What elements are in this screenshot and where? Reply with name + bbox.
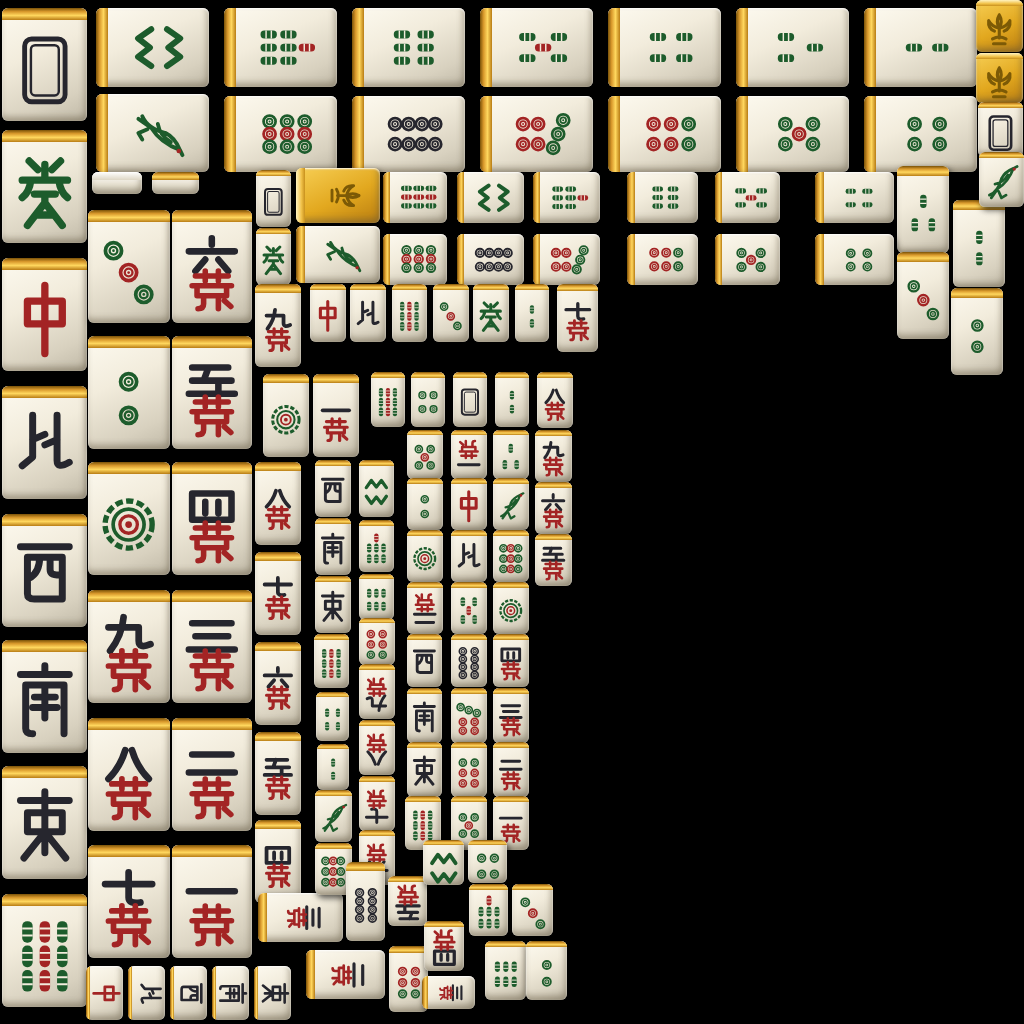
tile-gold-edge [457, 172, 464, 223]
dragon-red-icon [10, 276, 80, 365]
tile-wind-N-r90[interactable] [128, 966, 165, 1020]
circle-6-icon [641, 239, 691, 280]
tile-bamboo-5-r90[interactable] [715, 172, 780, 223]
tile-gold-edge [88, 462, 170, 474]
tile-back[interactable] [256, 170, 291, 227]
tile-face-wind-S [407, 694, 442, 743]
bamboo-1-icon [313, 232, 373, 277]
tile-bamboo-4-r90[interactable] [815, 172, 894, 223]
tile-face-back [453, 378, 487, 427]
tile-gold-edge [736, 8, 748, 87]
tile-face-bamboo-1 [493, 484, 529, 530]
tile-circle-9[interactable] [493, 530, 529, 582]
tile-circle-2[interactable] [407, 478, 443, 530]
tile-gold-edge [263, 374, 309, 383]
tile-back[interactable] [978, 102, 1023, 157]
tile-bamboo-8-r90[interactable] [96, 8, 209, 87]
tile-bamboo-8[interactable] [359, 460, 394, 517]
tile-gold-edge [88, 718, 170, 730]
tile-char-1[interactable] [313, 374, 359, 457]
char-6-icon [259, 654, 297, 721]
circle-2-icon [956, 301, 999, 371]
tile-bamboo-3-r90[interactable] [736, 8, 849, 87]
tile-circle-1[interactable] [493, 582, 529, 634]
tile-face-char-7 [88, 857, 170, 958]
tile-char-7-r180[interactable] [359, 776, 395, 831]
tile-char-1[interactable] [172, 845, 252, 958]
tile-circle-4[interactable] [468, 840, 507, 883]
tile-circle-3[interactable] [433, 284, 469, 342]
tile-gold-edge [864, 8, 876, 87]
tile-face-circle-5 [722, 234, 780, 285]
char-2-icon [322, 956, 378, 994]
tile-dragon-green[interactable] [473, 284, 509, 342]
tile-char-4-r180[interactable] [424, 921, 464, 971]
tile-face-circle-9 [236, 96, 337, 172]
tile-face-char-3 [493, 694, 529, 743]
tile-bamboo-4-r90[interactable] [608, 8, 721, 87]
tile-gold-edge [715, 234, 722, 285]
tile-char-3-r90[interactable] [422, 976, 475, 1009]
tile-atlas-board [0, 0, 1024, 1024]
tile-circle-5-r90[interactable] [736, 96, 849, 172]
tile-face-circle-8 [451, 640, 487, 687]
circle-1-icon [496, 590, 526, 631]
char-9-icon [259, 296, 297, 363]
tile-gold-edge [627, 234, 635, 285]
tile-char-2[interactable] [172, 718, 252, 831]
bamboo-2-icon [320, 751, 346, 787]
tile-face-char-1 [172, 857, 252, 958]
circle-1-icon [267, 386, 305, 453]
wind-E-icon [10, 784, 80, 873]
bamboo-5-icon [503, 16, 583, 79]
tile-face-char-5 [255, 741, 301, 815]
tile-face-bamboo-6 [364, 8, 465, 87]
tile-back[interactable] [453, 372, 487, 427]
tile-wind-W[interactable] [315, 460, 351, 517]
tile-char-6[interactable] [255, 642, 301, 725]
tile-gold-edge [172, 462, 252, 474]
tile-wind-N[interactable] [451, 530, 487, 582]
dragon-green-icon [476, 293, 506, 340]
tile-bamboo-6-r90[interactable] [627, 172, 698, 223]
dragon-green-icon [10, 148, 80, 237]
tile-circle-2[interactable] [88, 336, 170, 449]
tile-char-7[interactable] [255, 552, 301, 635]
tile-face-char-9 [535, 436, 572, 482]
tile-face-bamboo-9 [392, 290, 427, 342]
tile-dragon-red[interactable] [2, 258, 87, 371]
tile-circle-7[interactable] [451, 688, 487, 743]
bamboo-6-icon [641, 177, 691, 218]
circle-2-icon [410, 486, 440, 527]
bamboo-6-icon [489, 950, 523, 997]
flower-icon [980, 9, 1019, 52]
tile-char-3[interactable] [493, 688, 529, 743]
tile-bamboo-1[interactable] [315, 790, 352, 842]
tile-char-9[interactable] [88, 590, 170, 703]
tile-flower-r90[interactable] [296, 168, 380, 223]
wind-N-icon [135, 969, 161, 1018]
tile-gold-edge [897, 166, 949, 176]
tile-face-bamboo-4 [824, 172, 894, 223]
char-8-icon [540, 381, 570, 426]
circle-4-icon [414, 380, 442, 424]
tile-face-char-6 [172, 222, 252, 323]
tile-face-circle-8 [464, 234, 524, 285]
wind-N-icon [353, 293, 383, 340]
tile-char-6[interactable] [172, 210, 252, 323]
tile-bamboo-1-r90[interactable] [96, 94, 209, 172]
char-7-icon [561, 294, 595, 349]
tile-flower[interactable] [976, 53, 1023, 103]
char-7-icon [362, 785, 392, 829]
tile-flower[interactable] [976, 0, 1023, 52]
tile-char-5[interactable] [535, 534, 572, 586]
tile-char-6[interactable] [535, 482, 572, 534]
tile-face-wind-W [174, 966, 207, 1020]
tile-circle-9-r90[interactable] [383, 234, 447, 285]
tile-bamboo-2-r90[interactable] [864, 8, 977, 87]
tile-char-5-r180[interactable] [388, 876, 427, 926]
tile-gold-edge [172, 336, 252, 348]
tile-gold-edge [255, 820, 301, 829]
tile-circle-1[interactable] [407, 530, 443, 582]
circle-5-icon [410, 438, 440, 477]
tile-char-5[interactable] [172, 336, 252, 449]
tile-face-wind-E [407, 748, 442, 797]
tile-side[interactable] [92, 172, 142, 194]
tile-char-2-r90[interactable] [306, 950, 385, 999]
tile-face-char-6 [255, 651, 301, 725]
bamboo-9-icon [374, 380, 402, 424]
tile-face-circle-2 [88, 348, 170, 449]
tile-bamboo-7-r90[interactable] [533, 172, 600, 223]
bamboo-7-icon [362, 528, 391, 569]
tile-face-bamboo-1 [979, 158, 1024, 207]
tile-char-9[interactable] [535, 430, 572, 482]
tile-circle-1[interactable] [263, 374, 309, 457]
tile-face-wind-N [2, 398, 87, 499]
tile-bamboo-1[interactable] [493, 478, 529, 530]
char-4-icon [428, 929, 461, 968]
bamboo-2-icon [958, 213, 1001, 283]
tile-face-wind-E [258, 966, 291, 1020]
tile-bamboo-5[interactable] [451, 582, 487, 634]
tile-bamboo-6-r90[interactable] [352, 8, 465, 87]
tile-face-bamboo-7 [469, 890, 508, 936]
tile-face-char-6 [535, 488, 572, 534]
tile-circle-3[interactable] [897, 252, 949, 339]
tile-face-circle-7 [492, 96, 593, 172]
circle-9-icon [496, 538, 526, 579]
tile-face-char-4 [424, 927, 464, 972]
tile-circle-3[interactable] [88, 210, 170, 323]
tile-bamboo-2[interactable] [515, 284, 549, 342]
tile-gold-edge [2, 130, 87, 142]
tile-face-char-5 [388, 882, 427, 927]
tile-gold-edge [2, 640, 87, 652]
bamboo-2-icon [498, 380, 526, 424]
tile-char-9[interactable] [255, 284, 301, 367]
tile-face-char-7 [557, 291, 598, 352]
tile-face-char-2 [315, 950, 385, 999]
tile-char-1-r180[interactable] [451, 430, 487, 479]
tile-wind-E[interactable] [315, 576, 351, 633]
tile-face-bamboo-5 [492, 8, 593, 87]
tile-bamboo-8-r90[interactable] [457, 172, 524, 223]
circle-3-icon [95, 228, 162, 317]
tile-wind-W[interactable] [2, 514, 87, 627]
tile-bamboo-3[interactable] [897, 166, 949, 253]
tile-face-circle-8 [346, 871, 385, 941]
dragon-red-icon [313, 293, 343, 340]
back-icon [10, 26, 80, 115]
tile-bamboo-7[interactable] [469, 884, 508, 936]
tile-circle-2[interactable] [526, 941, 567, 1000]
circle-6-icon [393, 956, 425, 1009]
tile-face-bamboo-3 [493, 435, 529, 479]
tile-bamboo-2[interactable] [953, 200, 1005, 287]
tile-circle-2[interactable] [951, 288, 1003, 375]
tile-char-8[interactable] [537, 372, 573, 428]
wind-S-icon [318, 527, 348, 573]
bamboo-3-icon [902, 179, 945, 249]
tile-gold-edge [389, 946, 428, 953]
tile-gold-edge [172, 210, 252, 222]
back-icon [456, 380, 484, 424]
tile-circle-8-r90[interactable] [352, 96, 465, 172]
tile-circle-6-r180[interactable] [359, 618, 395, 665]
tile-circle-9-r90[interactable] [224, 96, 337, 172]
tile-circle-8-r90[interactable] [457, 234, 524, 285]
tile-wind-S-r90[interactable] [212, 966, 249, 1020]
tile-bamboo-6[interactable] [359, 574, 394, 620]
tile-wind-E[interactable] [2, 766, 87, 879]
char-4-icon [259, 832, 297, 899]
tile-gold-edge [897, 252, 949, 262]
tile-char-3-r90[interactable] [258, 893, 343, 942]
tile-gold-edge [2, 8, 87, 20]
wind-E-icon [410, 750, 439, 794]
tile-face-char-2 [493, 748, 529, 797]
tile-bamboo-7-r90[interactable] [224, 8, 337, 87]
wind-E-icon [318, 585, 348, 631]
tile-circle-7-r90[interactable] [533, 234, 600, 285]
tile-char-8-r180[interactable] [359, 720, 395, 775]
circle-7-icon [503, 104, 583, 164]
char-2-icon [179, 736, 245, 825]
tile-circle-3[interactable] [512, 884, 553, 936]
tile-face-char-3 [172, 602, 252, 703]
char-4-icon [496, 642, 526, 684]
tile-gold-edge [352, 8, 364, 87]
char-9-icon [538, 438, 568, 479]
tile-gold-edge [255, 462, 301, 471]
tile-face-bamboo-1 [315, 796, 352, 842]
back-icon [259, 179, 288, 225]
tile-circle-4-r90[interactable] [864, 96, 977, 172]
tile-wind-N[interactable] [2, 386, 87, 499]
tile-gold-edge [88, 210, 170, 222]
tile-char-5[interactable] [255, 732, 301, 815]
tile-char-2[interactable] [493, 742, 529, 797]
tile-face-circle-2 [407, 484, 443, 530]
tile-circle-8[interactable] [451, 634, 487, 687]
tile-face-back [256, 176, 291, 227]
tile-bamboo-9[interactable] [371, 372, 405, 427]
tile-wind-W-r90[interactable] [170, 966, 207, 1020]
tile-bamboo-1-r90[interactable] [296, 226, 380, 283]
tile-circle-5-r90[interactable] [715, 234, 780, 285]
tile-face-wind-N [451, 536, 487, 582]
tile-face-wind-S [2, 652, 87, 753]
tile-face-wind-W [315, 466, 351, 517]
tile-bamboo-1[interactable] [979, 152, 1024, 207]
char-5-icon [538, 542, 568, 583]
char-3-icon [496, 697, 526, 741]
tile-bamboo-6[interactable] [485, 941, 526, 1000]
tile-wind-N[interactable] [350, 284, 386, 342]
tile-face-char-9 [255, 293, 301, 367]
wind-W-icon [318, 469, 348, 515]
tile-back[interactable] [2, 8, 87, 121]
tile-face-circle-3 [512, 890, 553, 936]
tile-face-dragon-green [473, 290, 509, 342]
tile-gold-edge [951, 288, 1003, 298]
bamboo-3-icon [759, 16, 839, 79]
tile-side-gold[interactable] [152, 172, 199, 194]
bamboo-3-icon [496, 438, 526, 477]
tile-circle-5[interactable] [407, 430, 443, 479]
tile-wind-E-r90[interactable] [254, 966, 291, 1020]
tile-char-7[interactable] [557, 284, 598, 352]
tile-circle-6-r90[interactable] [627, 234, 698, 285]
tile-face-char-2 [407, 588, 443, 634]
tile-char-4[interactable] [172, 462, 252, 575]
tile-gold-edge [608, 96, 620, 172]
tile-face-bamboo-7 [236, 8, 337, 87]
dragon-red-icon [454, 486, 484, 527]
tile-face-char-8 [255, 471, 301, 545]
tile-wind-S[interactable] [2, 640, 87, 753]
tile-char-4[interactable] [255, 820, 301, 903]
tile-gold-edge [2, 386, 87, 398]
tile-wind-E[interactable] [407, 742, 442, 797]
tile-gold-edge [255, 732, 301, 741]
bamboo-8-icon [362, 469, 391, 515]
circle-8-icon [454, 642, 484, 684]
tile-face-char-1 [451, 435, 487, 479]
tile-face-circle-4 [468, 845, 507, 883]
tile-dragon-green[interactable] [256, 228, 291, 285]
bamboo-8-icon [119, 16, 199, 79]
tile-bamboo-4[interactable] [316, 692, 349, 741]
tile-bamboo-9[interactable] [2, 894, 87, 1007]
tile-bamboo-3[interactable] [493, 430, 529, 479]
tile-gold-edge [815, 172, 824, 223]
tile-char-8[interactable] [88, 718, 170, 831]
tile-circle-6[interactable] [451, 742, 487, 797]
tile-gold-edge [88, 336, 170, 348]
tile-face-circle-6 [635, 234, 698, 285]
tile-char-2-r180[interactable] [407, 582, 443, 634]
tile-bamboo-9[interactable] [314, 634, 349, 688]
wind-E-icon [261, 969, 287, 1018]
bamboo-1-icon [318, 798, 348, 839]
tile-circle-1[interactable] [88, 462, 170, 575]
tile-face-flower [976, 6, 1023, 52]
tile-face-char-8 [359, 726, 395, 775]
tile-char-7[interactable] [88, 845, 170, 958]
tile-circle-8[interactable] [346, 862, 385, 941]
tile-bamboo-7[interactable] [359, 520, 394, 572]
char-4-icon [179, 480, 245, 569]
wind-W-icon [410, 642, 439, 684]
tile-face-circle-4 [824, 234, 894, 285]
tile-circle-4[interactable] [411, 372, 445, 427]
tile-face-bamboo-2 [876, 8, 977, 87]
circle-4-icon [472, 847, 504, 883]
tile-circle-6-r90[interactable] [608, 96, 721, 172]
tile-bamboo-2[interactable] [317, 744, 349, 790]
tile-face-char-4 [255, 829, 301, 903]
tile-dragon-red[interactable] [310, 284, 346, 342]
tile-face-dragon-red [451, 484, 487, 530]
circle-5-icon [728, 239, 774, 281]
circle-8-icon [375, 104, 455, 164]
char-1-icon [179, 863, 245, 952]
tile-char-8[interactable] [255, 462, 301, 545]
tile-wind-S[interactable] [315, 518, 351, 575]
tile-face-wind-E [2, 778, 87, 879]
tile-char-3[interactable] [172, 590, 252, 703]
tile-bamboo-8[interactable] [423, 840, 464, 885]
tile-bamboo-9-r90[interactable] [383, 172, 447, 223]
tile-dragon-green[interactable] [2, 130, 87, 243]
tile-dragon-red-r90[interactable] [86, 966, 123, 1020]
tile-face-bamboo-4 [620, 8, 721, 87]
tile-face-wind-N [350, 290, 386, 342]
tile-circle-7-r90[interactable] [480, 96, 593, 172]
tile-face-wind-E [315, 582, 351, 633]
tile-face-circle-1 [407, 536, 443, 582]
tile-circle-4-r90[interactable] [815, 234, 894, 285]
tile-char-9-r180[interactable] [359, 664, 395, 719]
tile-char-4[interactable] [493, 634, 529, 687]
char-7-icon [259, 564, 297, 631]
tile-face-circle-8 [364, 96, 465, 172]
tile-face-char-3 [428, 976, 475, 1009]
tile-bamboo-5-r90[interactable] [480, 8, 593, 87]
tile-gold-edge [346, 862, 385, 871]
tile-dragon-red[interactable] [451, 478, 487, 530]
tile-gold-edge [88, 590, 170, 602]
tile-face-circle-6 [620, 96, 721, 172]
tile-bamboo-9[interactable] [392, 284, 427, 342]
circle-5-icon [759, 104, 839, 164]
tile-wind-S[interactable] [407, 688, 442, 743]
tile-bamboo-2[interactable] [495, 372, 529, 427]
tile-wind-W[interactable] [407, 634, 442, 687]
bamboo-6-icon [362, 581, 391, 617]
tile-face-dragon-red [310, 290, 346, 342]
tile-gold-edge [296, 226, 305, 283]
wind-W-icon [177, 969, 203, 1018]
char-7-icon [95, 863, 162, 952]
flower-icon [980, 62, 1019, 103]
